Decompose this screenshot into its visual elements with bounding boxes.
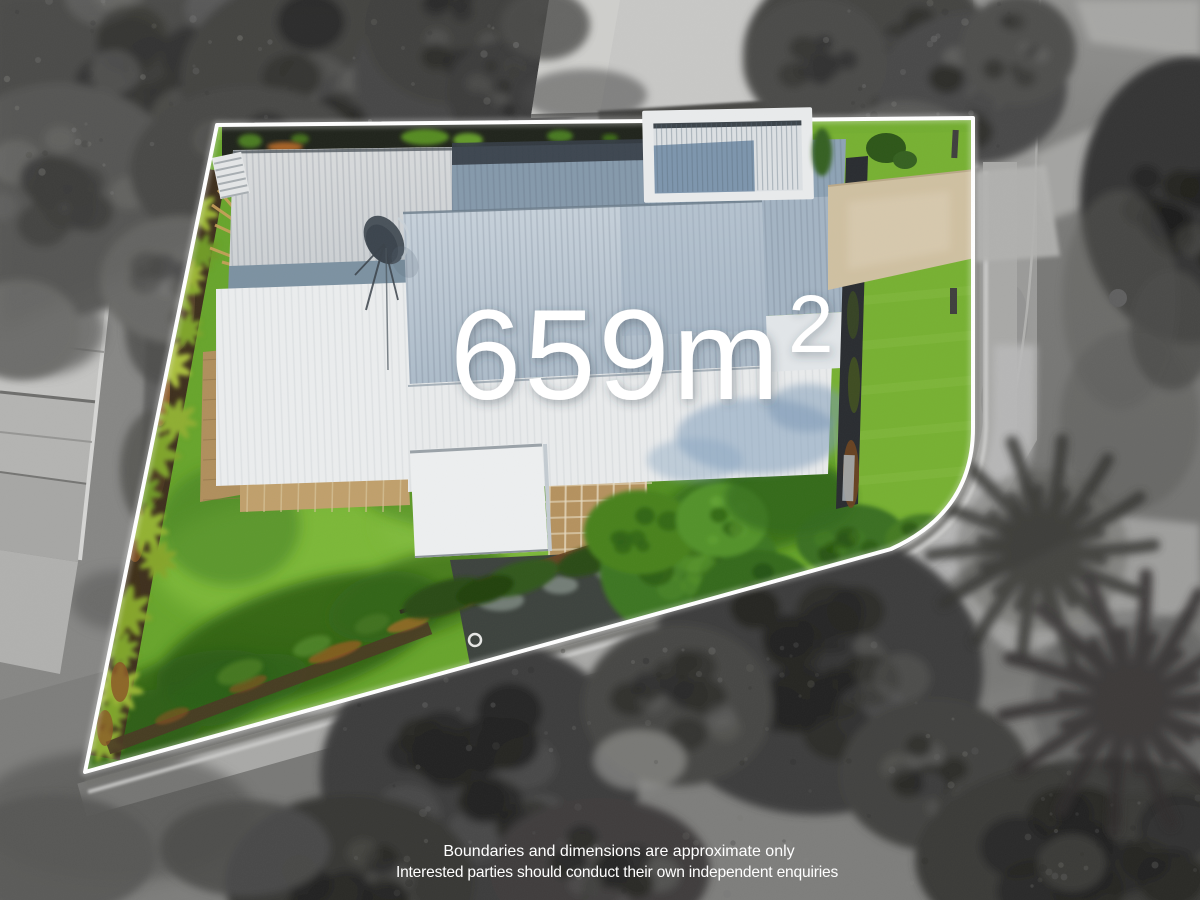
svg-text:Boundaries and dimensions are: Boundaries and dimensions are approximat… [443, 843, 794, 860]
svg-text:Interested parties should cond: Interested parties should conduct their … [396, 864, 839, 881]
svg-text:659m: 659m [450, 284, 782, 427]
svg-text:2: 2 [788, 279, 834, 370]
